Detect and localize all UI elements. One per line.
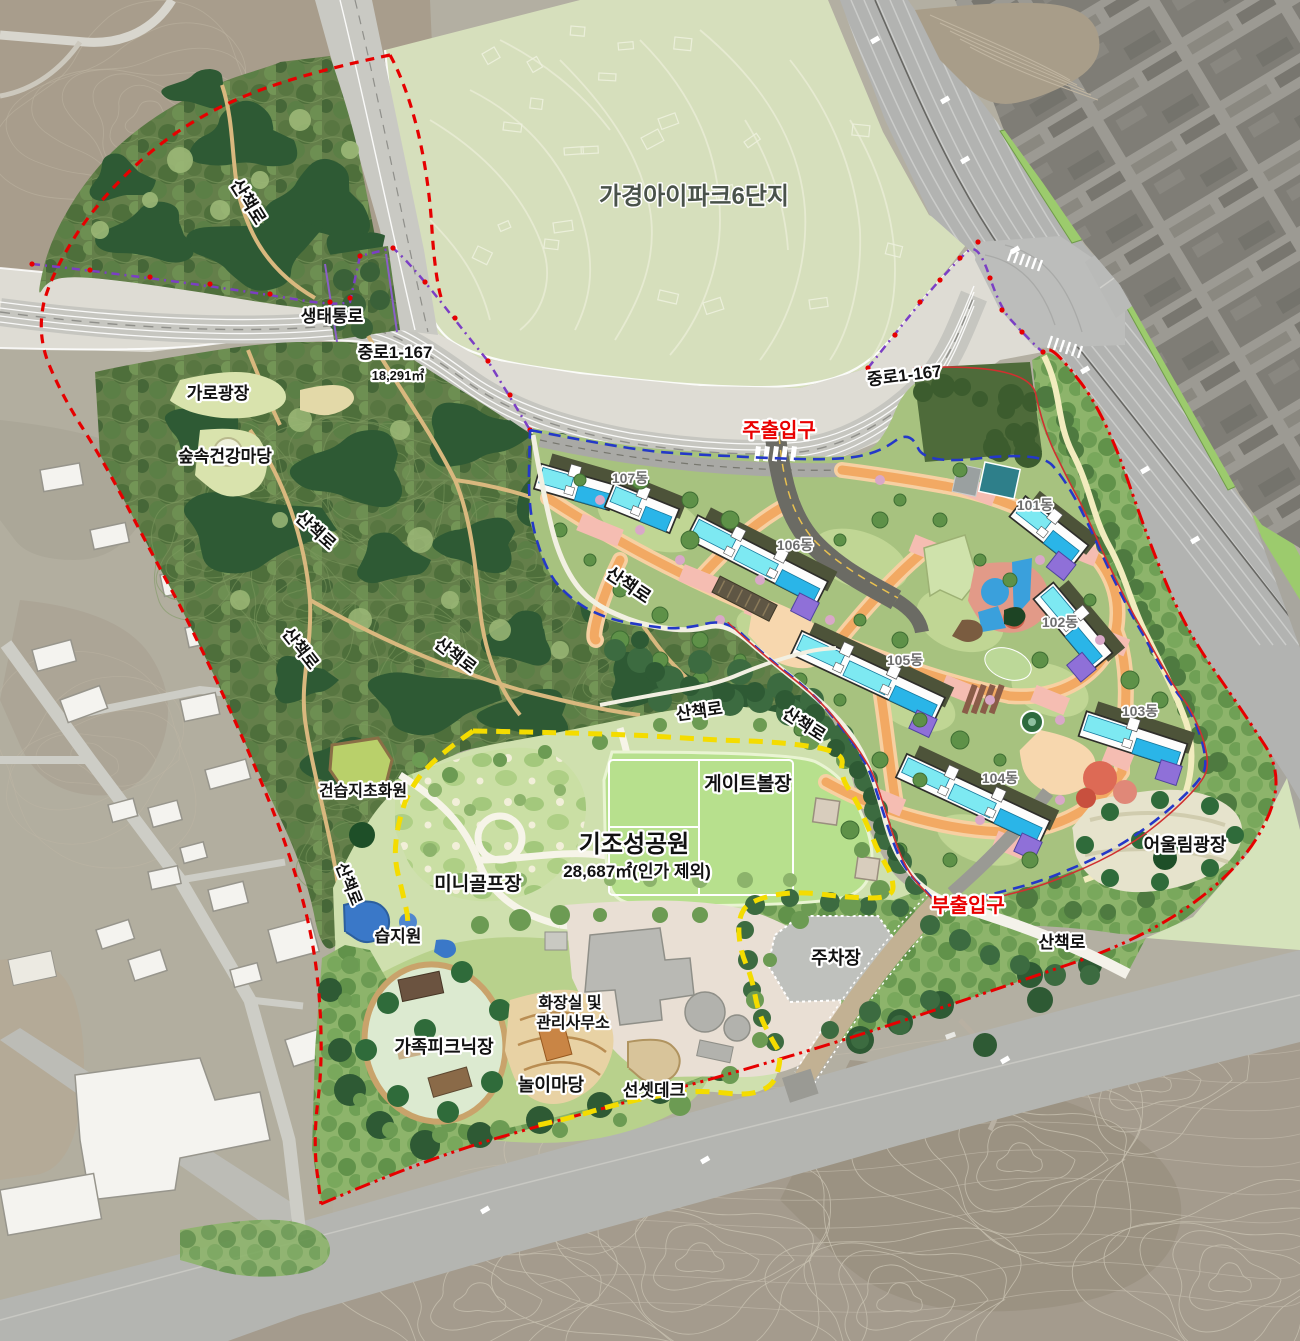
svg-text:생태통로: 생태통로 [301, 307, 364, 326]
svg-text:주출입구: 주출입구 [742, 419, 816, 442]
svg-text:화장실 및: 화장실 및 [538, 993, 601, 1012]
svg-text:놀이마당: 놀이마당 [518, 1075, 585, 1095]
svg-text:관리사무소: 관리사무소 [536, 1014, 610, 1032]
svg-text:103동: 103동 [1122, 703, 1158, 719]
svg-text:주차장: 주차장 [811, 948, 861, 968]
svg-text:가경아이파크6단지: 가경아이파크6단지 [599, 183, 789, 210]
svg-text:101동: 101동 [1017, 497, 1053, 513]
svg-text:게이트볼장: 게이트볼장 [704, 773, 792, 795]
svg-text:102동: 102동 [1042, 614, 1078, 630]
svg-text:105동: 105동 [887, 652, 923, 668]
svg-text:104동: 104동 [982, 770, 1018, 786]
svg-text:28,687㎡(인가 제외): 28,687㎡(인가 제외) [563, 861, 711, 881]
svg-text:습지원: 습지원 [375, 927, 422, 946]
svg-text:어울림광장: 어울림광장 [1144, 835, 1227, 855]
svg-text:기조성공원: 기조성공원 [579, 831, 689, 858]
svg-text:가족피크닉장: 가족피크닉장 [394, 1037, 494, 1057]
svg-text:18,291㎡: 18,291㎡ [372, 368, 425, 383]
svg-text:중로1-167: 중로1-167 [358, 343, 433, 362]
svg-text:부출입구: 부출입구 [931, 894, 1005, 917]
svg-text:숲속건강마당: 숲속건강마당 [178, 447, 272, 466]
svg-text:건습지초화원: 건습지초화원 [319, 781, 407, 800]
svg-text:산책로: 산책로 [1039, 933, 1086, 952]
svg-text:선셋데크: 선셋데크 [623, 1081, 686, 1100]
svg-text:가로광장: 가로광장 [187, 384, 250, 403]
svg-text:107동: 107동 [612, 470, 648, 486]
svg-text:106동: 106동 [777, 537, 813, 553]
svg-text:미니골프장: 미니골프장 [434, 873, 522, 895]
